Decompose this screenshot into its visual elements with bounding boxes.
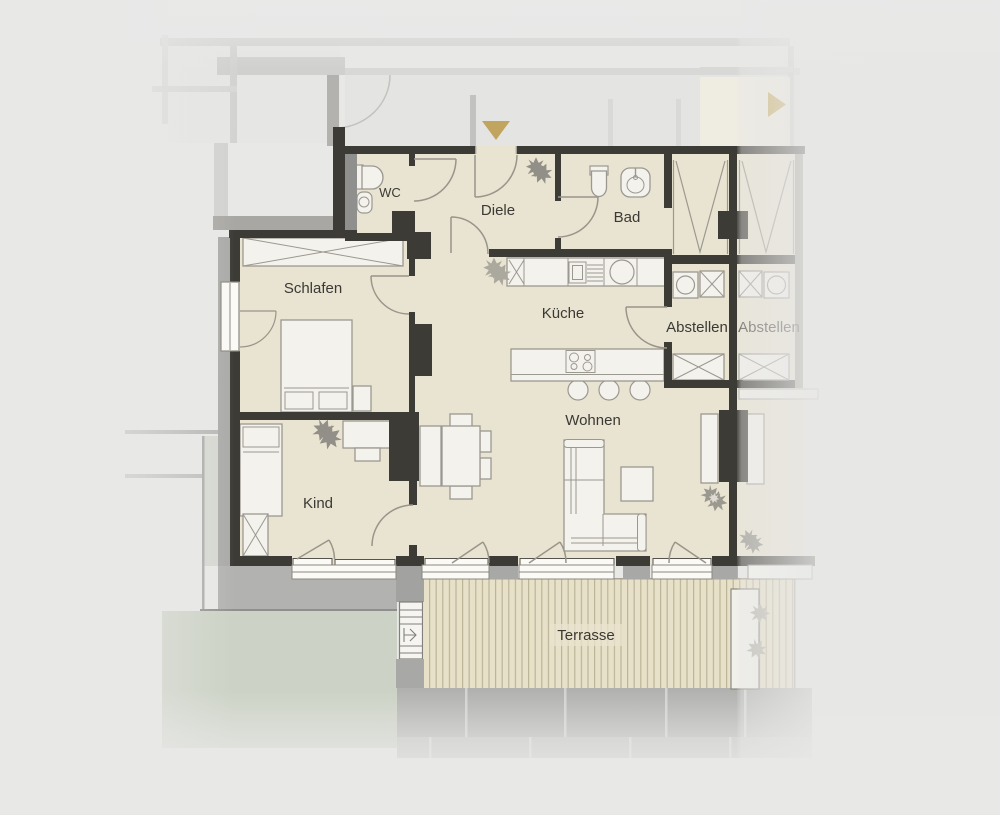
svg-text:Küche: Küche: [542, 305, 585, 322]
svg-text:Bad: Bad: [614, 209, 641, 226]
svg-text:Diele: Diele: [481, 202, 515, 219]
svg-text:Terrasse: Terrasse: [557, 627, 615, 644]
svg-text:Abstellen: Abstellen: [666, 319, 728, 336]
svg-text:WC: WC: [379, 185, 401, 200]
svg-text:Schlafen: Schlafen: [284, 280, 342, 297]
svg-text:Kind: Kind: [303, 495, 333, 512]
svg-text:Wohnen: Wohnen: [565, 412, 621, 429]
